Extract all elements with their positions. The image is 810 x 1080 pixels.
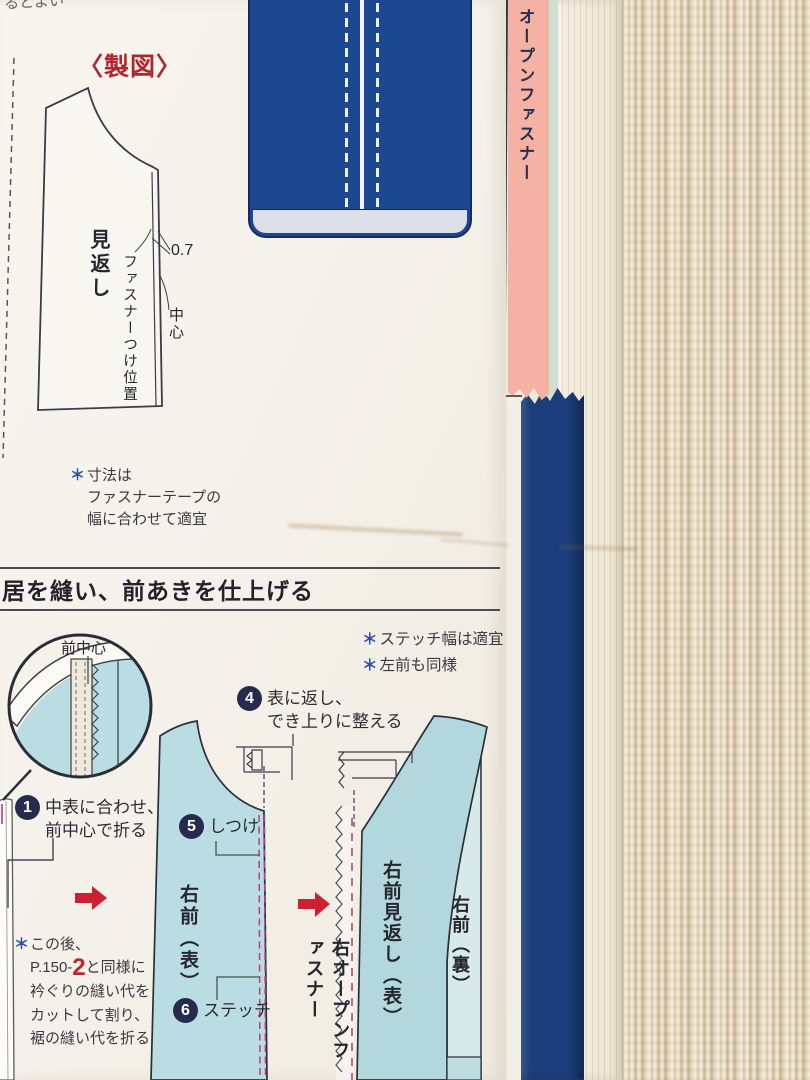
step-1: 1 中表に合わせ、 前中心で折る bbox=[15, 795, 164, 843]
section-rule-bottom bbox=[0, 609, 500, 611]
section-rule-top bbox=[0, 567, 500, 569]
cutoff-left-diagram bbox=[0, 799, 14, 1080]
step-number-badge: 6 bbox=[173, 998, 198, 1023]
facing-label: 見返し bbox=[84, 229, 113, 301]
step-number-badge: 4 bbox=[237, 686, 262, 711]
red-arrow-icon bbox=[75, 886, 107, 910]
right-open-fastener-label: 右オープンファスナー bbox=[301, 938, 353, 1080]
zipper-garment-illustration bbox=[248, 0, 472, 238]
center-label: 中心 bbox=[165, 307, 186, 341]
step1-leader bbox=[8, 838, 53, 908]
side-tab-label: オープンファスナー bbox=[513, 8, 537, 184]
right-front-outside-label: 右前（表） bbox=[174, 884, 201, 994]
step-5: 5 しつけ bbox=[179, 814, 259, 839]
right-front-inside-label: 右前（裏） bbox=[447, 895, 473, 995]
stitch-dashed-line-left bbox=[345, 0, 348, 208]
page-gap bbox=[507, 396, 523, 1080]
asterisk-icon: ＊ bbox=[14, 933, 29, 1050]
stitch-notes: ＊ステッチ幅は適宜 ＊左前も同様 bbox=[362, 627, 504, 680]
corduroy-fabric-background bbox=[618, 0, 810, 1080]
dashed-grain-line bbox=[3, 58, 14, 458]
asterisk-icon: ＊ bbox=[362, 631, 378, 648]
step-6: 6 ステッチ bbox=[173, 998, 271, 1023]
stain-mark bbox=[440, 538, 510, 547]
stain-mark bbox=[288, 523, 463, 536]
cutoff-text-fragment: るとよい bbox=[3, 0, 64, 14]
asterisk-icon: ＊ bbox=[362, 657, 378, 674]
page-reference-number: 2 bbox=[72, 954, 85, 981]
right-front-facing-label: 右前見返し（表） bbox=[377, 860, 404, 1028]
step-number-badge: 1 bbox=[15, 795, 40, 820]
step-number-badge: 5 bbox=[179, 814, 204, 839]
step-4: 4 表に返し、 でき上りに整える bbox=[237, 686, 403, 734]
inner-page-sliver bbox=[548, 0, 558, 402]
drafting-note: ＊ 寸法は ファスナーテープの 幅に合わせて適宜 bbox=[70, 465, 221, 530]
navy-cover-strip bbox=[521, 388, 584, 1080]
front-center-label: 前中心 bbox=[61, 637, 106, 658]
footnote: ＊ この後、 P.150-2と同様に 衿ぐりの縫い代を カットして割り、 裾の縫… bbox=[14, 933, 150, 1050]
book-page: るとよい 〈製図〉 見返し ファスナーつけ位置 0.7 中心 ＊ 寸法は ファス… bbox=[0, 0, 506, 1080]
section-title: 居を縫い、前あきを仕上げる bbox=[2, 572, 314, 606]
tear-line bbox=[505, 395, 522, 397]
photo-of-sewing-book: オープンファスナー るとよい 〈製図〉 見返し ファスナーつけ位置 0.7 中心… bbox=[0, 0, 810, 1080]
asterisk-icon: ＊ bbox=[70, 465, 85, 530]
zipper-position-label: ファスナーつけ位置 bbox=[119, 254, 140, 403]
hem-band bbox=[253, 209, 467, 233]
dimension-value: 0.7 bbox=[171, 242, 193, 260]
red-arrow-icon bbox=[298, 892, 330, 917]
center-seam-line bbox=[360, 0, 364, 210]
stitch-dashed-line-right bbox=[376, 0, 379, 208]
